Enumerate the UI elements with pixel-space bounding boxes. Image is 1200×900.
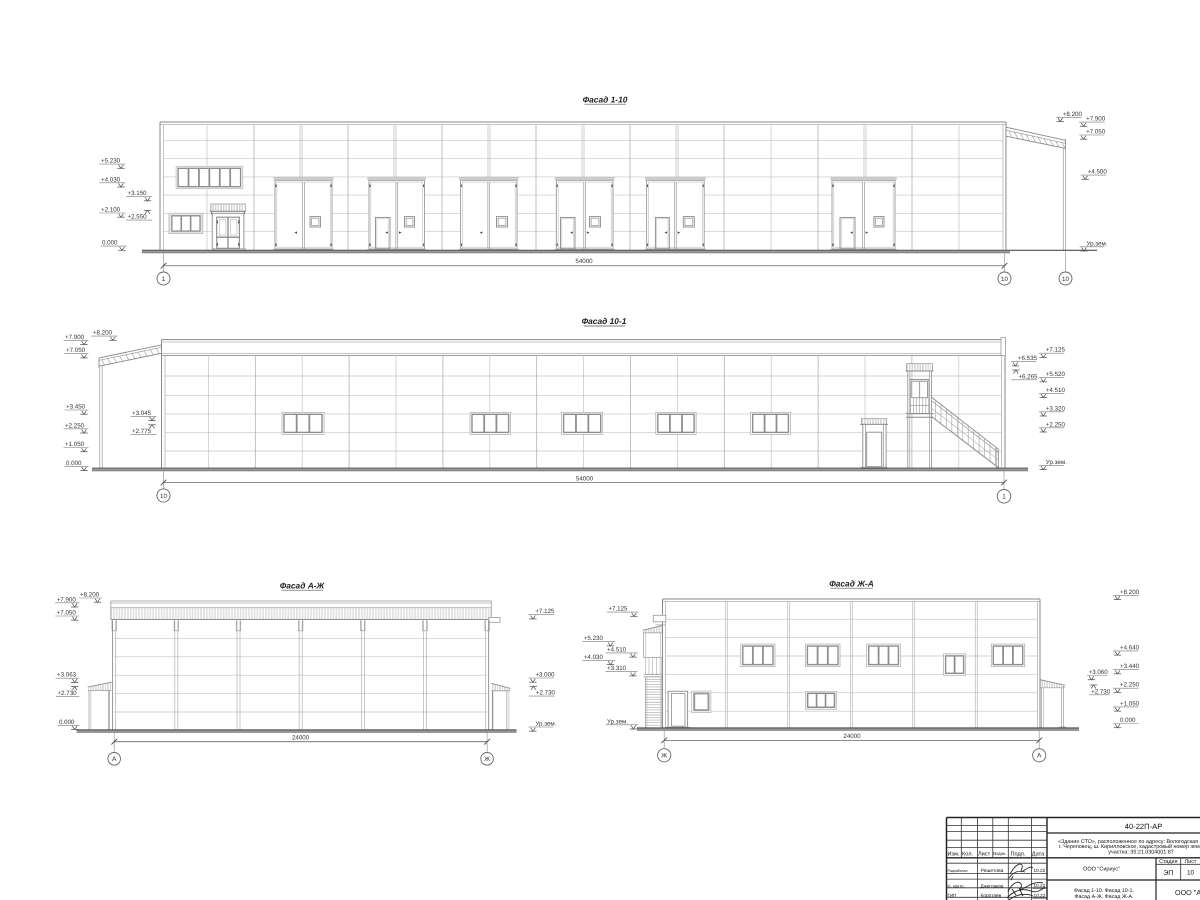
svg-text:0.000: 0.000 (102, 240, 118, 247)
svg-text:+5.230: +5.230 (101, 158, 121, 165)
svg-text:Кол.: Кол. (962, 851, 974, 857)
svg-text:Разработал: Разработал (948, 869, 968, 873)
svg-text:54000: 54000 (576, 475, 594, 482)
svg-text:+3.310: +3.310 (607, 665, 627, 672)
svg-text:+7.125: +7.125 (608, 606, 628, 613)
svg-text:Джиглавов: Джиглавов (981, 883, 1005, 888)
svg-text:+2.550: +2.550 (128, 214, 148, 221)
svg-text:Подп.: Подп. (1011, 851, 1026, 857)
svg-text:Ур.зем.: Ур.зем. (1087, 240, 1108, 247)
svg-text:Решетова: Решетова (981, 868, 1004, 874)
svg-text:40-22П-АР: 40-22П-АР (1125, 822, 1163, 831)
svg-text:Фасад А-Ж. Фасад Ж-А.: Фасад А-Ж. Фасад Ж-А. (1074, 894, 1133, 900)
svg-text:10: 10 (1062, 276, 1069, 283)
svg-text:Фасад А-Ж: Фасад А-Ж (280, 580, 326, 590)
svg-text:0.000: 0.000 (66, 460, 82, 467)
svg-text:+2.100: +2.100 (101, 207, 121, 214)
svg-text:+1.050: +1.050 (1120, 700, 1140, 707)
svg-text:Ур.зем.: Ур.зем. (1046, 459, 1067, 466)
svg-text:1: 1 (1002, 494, 1006, 501)
svg-text:Фасад 1-10. Фасад 10-1.: Фасад 1-10. Фасад 10-1. (1074, 888, 1134, 894)
svg-text:+1.050: +1.050 (65, 441, 85, 448)
svg-text:+2.775: +2.775 (132, 428, 152, 435)
svg-text:+7.050: +7.050 (57, 610, 77, 617)
svg-text:Дата: Дата (1032, 851, 1045, 857)
svg-text:Ж: Ж (484, 756, 490, 763)
svg-text:10: 10 (160, 493, 167, 500)
svg-text:Лист: Лист (1185, 859, 1197, 865)
svg-text:+7.050: +7.050 (66, 347, 86, 354)
svg-text:ООО "Сириус": ООО "Сириус" (1083, 867, 1120, 873)
svg-text:1: 1 (162, 276, 166, 283)
svg-text:+7.125: +7.125 (535, 608, 555, 615)
svg-text:+5.230: +5.230 (584, 635, 604, 642)
svg-text:+8.200: +8.200 (80, 592, 100, 599)
svg-text:10: 10 (1001, 276, 1008, 283)
svg-text:+2.730: +2.730 (536, 690, 556, 697)
svg-text:+4.500: +4.500 (1088, 169, 1108, 176)
svg-text:Стадия: Стадия (1159, 859, 1177, 865)
svg-text:+3.450: +3.450 (66, 404, 86, 411)
svg-text:+2.250: +2.250 (65, 422, 85, 429)
svg-text:Фасад 10-1: Фасад 10-1 (582, 316, 627, 326)
svg-text:10.22: 10.22 (1034, 868, 1046, 873)
svg-text:+7.050: +7.050 (1086, 129, 1106, 136)
svg-text:+3.063: +3.063 (57, 672, 77, 679)
svg-text:Фасад Ж-А: Фасад Ж-А (829, 578, 874, 588)
svg-text:+6.535: +6.535 (1018, 355, 1038, 362)
svg-text:+2.730: +2.730 (1091, 688, 1111, 695)
svg-text:+3.150: +3.150 (128, 190, 148, 197)
svg-text:+4.640: +4.640 (1120, 644, 1140, 651)
svg-text:Н. контр.: Н. контр. (948, 883, 965, 888)
svg-text:+2.250: +2.250 (1120, 682, 1140, 689)
svg-text:+3.045: +3.045 (132, 410, 152, 417)
svg-text:+8.200: +8.200 (1063, 111, 1083, 118)
svg-text:24000: 24000 (292, 735, 310, 742)
svg-text:54000: 54000 (575, 258, 593, 265)
svg-text:+7.900: +7.900 (65, 334, 85, 341)
svg-text:Изм.: Изм. (948, 851, 960, 857)
svg-text:+3.000: +3.000 (535, 672, 555, 679)
svg-text:+3.440: +3.440 (1120, 663, 1140, 670)
svg-text:+3.320: +3.320 (1046, 405, 1066, 412)
svg-text:Ур.зем.: Ур.зем. (607, 718, 628, 725)
svg-text:+4.030: +4.030 (101, 176, 121, 183)
svg-text:24000: 24000 (843, 733, 861, 740)
svg-text:ГИП: ГИП (948, 893, 957, 898)
svg-text:Коротаев: Коротаев (981, 893, 1002, 899)
svg-text:+7.125: +7.125 (1046, 347, 1066, 354)
svg-text:+8.200: +8.200 (93, 330, 113, 337)
svg-text:Лист: Лист (978, 851, 991, 857)
svg-text:участка: 35:21.0304001:87: участка: 35:21.0304001:87 (1108, 849, 1174, 855)
svg-text:ООО "Ал: ООО "Ал (1175, 888, 1200, 897)
svg-text:+2.250: +2.250 (1046, 421, 1066, 428)
svg-text:10.22: 10.22 (1034, 893, 1046, 898)
svg-text:Фасад 1-10: Фасад 1-10 (583, 94, 628, 104)
svg-text:+6.265: +6.265 (1018, 373, 1038, 380)
svg-text:+3.060: +3.060 (1089, 669, 1109, 676)
svg-text:+8.200: +8.200 (1120, 589, 1140, 596)
svg-text:№док.: №док. (993, 851, 1006, 856)
svg-text:ЭП: ЭП (1163, 870, 1173, 877)
svg-text:0.000: 0.000 (59, 719, 75, 726)
svg-text:+5.520: +5.520 (1046, 371, 1066, 378)
svg-text:+7.900: +7.900 (57, 596, 77, 603)
svg-text:+4.030: +4.030 (584, 654, 604, 661)
svg-text:+2.730: +2.730 (58, 690, 78, 697)
svg-text:А: А (112, 756, 117, 763)
svg-text:10: 10 (1187, 870, 1195, 877)
svg-text:+4.510: +4.510 (1046, 387, 1066, 394)
svg-text:+4.510: +4.510 (607, 646, 627, 653)
svg-text:Ур.зем.: Ур.зем. (535, 721, 556, 728)
svg-text:+7.900: +7.900 (1086, 116, 1106, 123)
svg-text:А: А (1037, 753, 1042, 760)
svg-text:0.000: 0.000 (1120, 717, 1136, 724)
svg-text:Ж: Ж (661, 753, 667, 760)
